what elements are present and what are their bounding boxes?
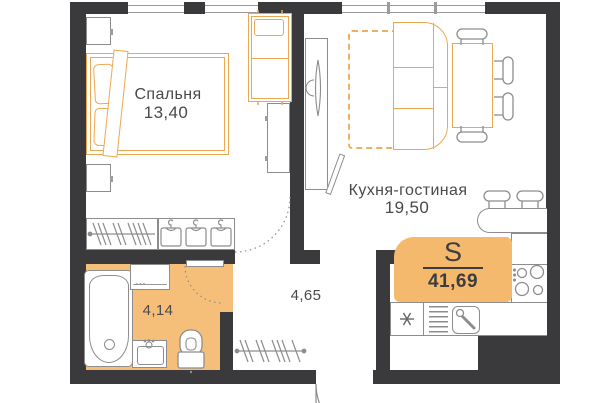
toilet-icon (178, 330, 204, 373)
snowflake-icon (400, 313, 414, 325)
chair-icon (457, 126, 487, 142)
bedroom-area: 13,40 (106, 104, 226, 123)
chair-icon (494, 57, 513, 84)
faucet-icon (457, 310, 475, 329)
chair-icon (457, 29, 487, 45)
dining-chairs (457, 29, 513, 142)
bedroom-door-arc (235, 197, 290, 252)
stove-burners (514, 266, 544, 296)
shirt-icons (161, 220, 231, 246)
bar-stools (484, 191, 543, 208)
hanger-rail-bedroom (88, 223, 155, 245)
entrance-door-arc (316, 384, 371, 403)
shirt-icon (161, 220, 181, 246)
floor-plan: S 41,69 (0, 0, 605, 403)
shirt-icon (211, 220, 231, 246)
bedroom-label: Спальня (108, 86, 228, 104)
kitchen-label: Кухня-гостиная (328, 182, 488, 200)
bathroom-area: 4,14 (128, 303, 188, 320)
bath-faucet-icon (144, 340, 154, 348)
kitchen-area: 19,50 (327, 199, 487, 218)
washer-controls (136, 283, 145, 285)
chair-icon (494, 93, 513, 120)
shirt-icon (186, 220, 206, 246)
plan-lineart (0, 0, 605, 403)
hallway-area: 4,65 (276, 288, 336, 305)
bathroom-door-arc (185, 266, 222, 303)
bar-stool-icon (517, 191, 543, 208)
tv-icon (306, 60, 321, 116)
crib-feet (258, 10, 282, 105)
hanger-rail-hallway (235, 340, 306, 362)
